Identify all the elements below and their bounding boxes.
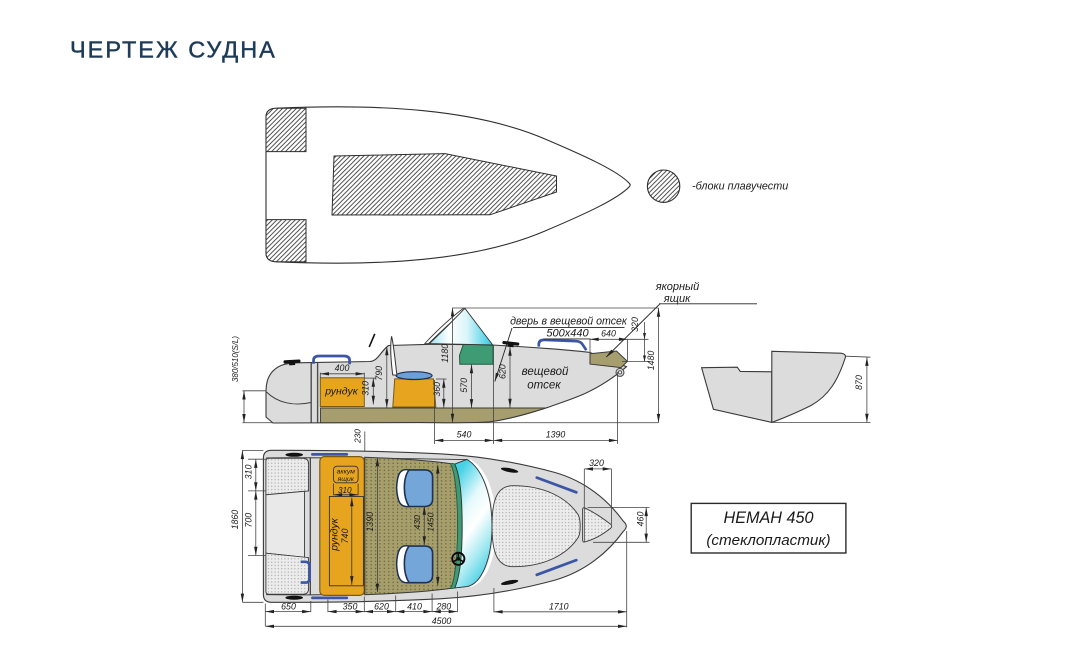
svg-text:1390: 1390 — [546, 429, 566, 439]
svg-text:рундук: рундук — [329, 517, 341, 551]
svg-text:вещевой: вещевой — [522, 366, 569, 378]
svg-text:рундук: рундук — [324, 386, 358, 398]
svg-text:ящик: ящик — [663, 293, 691, 305]
svg-text:1450: 1450 — [425, 512, 435, 531]
svg-text:1390: 1390 — [365, 512, 375, 532]
svg-text:790: 790 — [374, 366, 384, 381]
svg-text:аккум: аккум — [337, 468, 356, 475]
svg-text:якорный: якорный — [655, 281, 700, 293]
svg-text:400: 400 — [335, 363, 350, 373]
svg-text:310: 310 — [338, 486, 352, 495]
svg-text:дверь в вещевой отсек: дверь в вещевой отсек — [510, 316, 628, 328]
svg-text:650: 650 — [281, 601, 296, 611]
svg-text:280: 280 — [435, 601, 451, 611]
svg-text:1180: 1180 — [440, 344, 450, 363]
svg-text:230: 230 — [352, 429, 362, 444]
svg-text:320: 320 — [630, 317, 640, 332]
svg-text:1480: 1480 — [646, 351, 656, 371]
svg-text:380/510(S/L): 380/510(S/L) — [230, 336, 240, 382]
svg-text:700: 700 — [243, 513, 253, 528]
svg-text:ящик: ящик — [337, 476, 355, 483]
svg-text:310: 310 — [360, 381, 370, 396]
svg-text:620: 620 — [374, 601, 389, 611]
svg-text:ЧЕРТЕЖ СУДНА: ЧЕРТЕЖ СУДНА — [70, 37, 277, 63]
svg-text:500х440: 500х440 — [546, 328, 589, 340]
svg-text:870: 870 — [854, 375, 864, 390]
svg-text:430: 430 — [412, 515, 422, 530]
svg-text:640: 640 — [601, 328, 616, 338]
svg-text:360: 360 — [432, 382, 442, 397]
svg-text:-блоки плавучести: -блоки плавучести — [692, 180, 788, 192]
svg-text:570: 570 — [459, 378, 469, 393]
svg-text:1860: 1860 — [230, 510, 240, 530]
svg-text:4500: 4500 — [432, 616, 452, 626]
svg-text:350: 350 — [343, 601, 358, 611]
svg-text:НЕМАН 450: НЕМАН 450 — [724, 509, 814, 527]
svg-text:320: 320 — [589, 458, 604, 468]
svg-text:отсек: отсек — [527, 380, 561, 392]
svg-text:(стеклопластик): (стеклопластик) — [706, 532, 830, 549]
svg-text:410: 410 — [407, 601, 422, 611]
svg-text:1710: 1710 — [549, 601, 569, 611]
svg-text:620: 620 — [498, 364, 508, 379]
svg-text:460: 460 — [635, 512, 645, 527]
svg-text:540: 540 — [457, 429, 472, 439]
svg-text:310: 310 — [243, 465, 253, 480]
svg-text:740: 740 — [340, 529, 350, 544]
